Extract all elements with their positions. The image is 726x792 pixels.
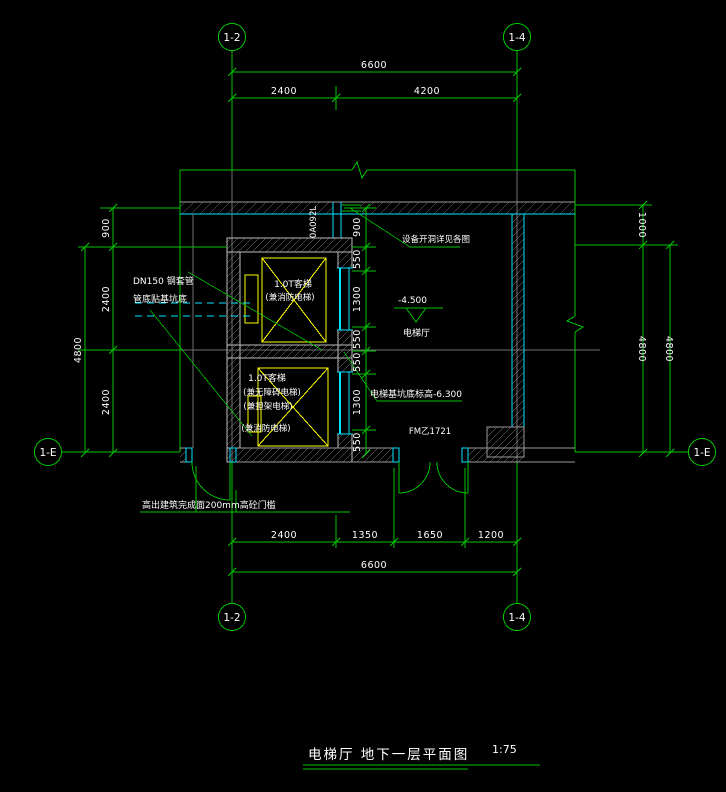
dim-right-top: 1000 xyxy=(636,212,647,238)
equipment-note: 设备开洞详见各图 xyxy=(402,234,470,245)
dim-chain-6: 1300 xyxy=(352,389,363,415)
grid-bubble-bottom-left: 1-2 xyxy=(219,604,246,631)
pipe-note-line2: 管底贴基坑底 xyxy=(133,293,187,305)
dim-bottom-seg-2: 1350 xyxy=(352,530,378,541)
grid-bubble-bottom-right: 1-4 xyxy=(504,604,531,631)
threshold-note: 高出建筑完成面200mm高砼门槛 xyxy=(142,499,276,511)
dim-chain-2: 550 xyxy=(352,249,363,269)
dimension-lines xyxy=(78,68,678,576)
dim-right-inner-total: 4800 xyxy=(636,336,647,362)
dim-top-total: 6600 xyxy=(361,60,387,71)
dim-top-seg-1: 2400 xyxy=(271,86,297,97)
cad-floor-plan: 1-2 1-4 1-2 1-4 1-E 1-E 6600 2400 4200 2… xyxy=(0,0,726,792)
grid-label-left-row: 1-E xyxy=(39,447,56,459)
dim-left-seg-3: 2400 xyxy=(101,389,112,415)
dim-bottom-total: 6600 xyxy=(361,560,387,571)
grid-label-right-row: 1-E xyxy=(693,447,710,459)
dim-bottom-seg-3: 1650 xyxy=(417,530,443,541)
pipe-note-line1: DN150 钢套管 xyxy=(133,275,194,287)
grid-bubble-top-right: 1-4 xyxy=(504,24,531,51)
right-wall xyxy=(487,214,524,457)
dim-chain-7: 550 xyxy=(352,432,363,452)
elevator-bottom-label-1: 1.0T客梯 xyxy=(248,372,286,384)
dim-chain-1: 900 xyxy=(352,217,363,237)
dim-chain-4: 550 xyxy=(352,329,363,349)
dim-left-total: 4800 xyxy=(73,337,84,363)
pit-level-note: 电梯基坑底标高-6.300 xyxy=(370,388,462,400)
elevator-top-label-1: 1.0T客梯 xyxy=(274,278,312,290)
dim-left-seg-2: 2400 xyxy=(101,286,112,312)
dim-chain-5: 550 xyxy=(352,352,363,372)
double-door-center xyxy=(393,448,468,493)
cad-canvas: 1-2 1-4 1-2 1-4 1-E 1-E 6600 2400 4200 2… xyxy=(0,0,726,792)
dim-bottom-seg-1: 2400 xyxy=(271,530,297,541)
grid-bubble-left-row: 1-E xyxy=(35,439,62,466)
elevator-bottom-label-3: (兼担架电梯) xyxy=(243,401,292,412)
leader-lines xyxy=(140,208,462,512)
door-tag: FM乙1721 xyxy=(409,427,451,437)
elevator-top-label-2: (兼消防电梯) xyxy=(265,292,314,303)
level-marker xyxy=(394,308,443,322)
grid-label-top-right: 1-4 xyxy=(508,32,525,44)
duct-tag: 0A092L xyxy=(309,206,319,238)
floor-level-value: -4.500 xyxy=(398,296,427,306)
grid-label-top-left: 1-2 xyxy=(223,32,240,44)
drawing-title: 电梯厅 地下一层平面图 xyxy=(308,747,469,763)
dim-bottom-seg-4: 1200 xyxy=(478,530,504,541)
dim-top-seg-2: 4200 xyxy=(414,86,440,97)
grid-label-bottom-right: 1-4 xyxy=(508,612,525,624)
grid-bubble-top-left: 1-2 xyxy=(219,24,246,51)
title-block: 电梯厅 地下一层平面图 1:75 xyxy=(303,743,540,769)
dim-right-outer-total: 4800 xyxy=(663,336,674,362)
dim-chain-3: 1300 xyxy=(352,286,363,312)
elevator-bottom-label-4: (兼消防电梯) xyxy=(241,423,290,434)
room-label: 电梯厅 xyxy=(403,327,430,339)
grid-bubble-right-row: 1-E xyxy=(689,439,716,466)
elevator-bottom-label-2: (兼无障碍电梯) xyxy=(243,387,301,398)
grid-label-bottom-left: 1-2 xyxy=(223,612,240,624)
drawing-scale: 1:75 xyxy=(492,743,517,756)
dim-left-seg-1: 900 xyxy=(101,218,112,238)
